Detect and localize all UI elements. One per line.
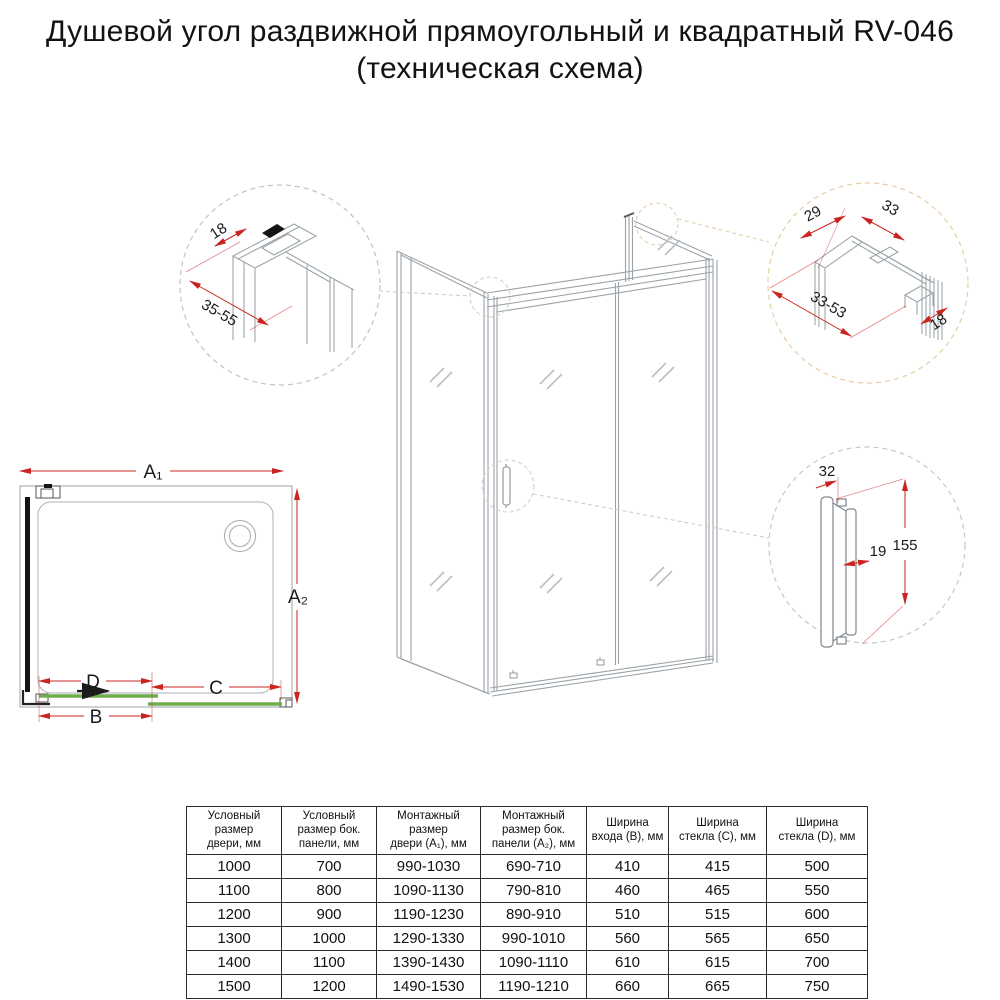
size-spec-table: Условный размер двери, ммУсловный размер… — [186, 806, 868, 999]
table-cell: 1500 — [187, 975, 282, 999]
plan-outline — [20, 486, 292, 707]
detail-circle-handle — [769, 447, 965, 643]
table-cell: 560 — [587, 927, 669, 951]
callout-line-left — [379, 291, 470, 296]
table-cell: 1190-1210 — [481, 975, 587, 999]
shower-tray — [38, 502, 273, 693]
door-handle-3d — [503, 464, 510, 508]
wall-profile-plan-top — [36, 484, 60, 498]
dim-label-155: 155 — [892, 537, 917, 554]
technical-scheme-page: Душевой угол раздвижной прямоугольный и … — [0, 0, 1000, 1000]
table-header-row: Условный размер двери, ммУсловный размер… — [187, 807, 868, 855]
table-cell: 410 — [587, 855, 669, 879]
table-cell: 700 — [767, 951, 868, 975]
table-cell: 1190-1230 — [377, 903, 481, 927]
table-cell: 890-910 — [481, 903, 587, 927]
detail-top-left: 18 35-55 — [180, 185, 380, 385]
table-header-cell: Монтажный размер двери (A₁), мм — [377, 807, 481, 855]
dim-label-35-55: 35-55 — [198, 296, 240, 330]
table-header-cell: Условный размер бок. панели, мм — [282, 807, 377, 855]
detail-handle: 32 155 19 — [769, 447, 965, 647]
table-cell: 790-810 — [481, 879, 587, 903]
table-header-cell: Ширина стекла (D), мм — [767, 807, 868, 855]
plan-label-b: B — [90, 707, 103, 728]
detail-circle-top-left — [180, 185, 380, 385]
table-cell: 550 — [767, 879, 868, 903]
dim-label-29: 29 — [802, 203, 825, 226]
table-cell: 1100 — [282, 951, 377, 975]
callout-line-right — [678, 219, 769, 242]
plan-label-a1: A₁ — [143, 462, 162, 483]
table-cell: 510 — [587, 903, 669, 927]
drain-circle-inner — [230, 526, 251, 547]
detail-top-right: 29 33 33-53 18 — [768, 183, 968, 383]
side-panel-plan — [25, 497, 30, 692]
dim-label-32: 32 — [819, 463, 836, 480]
table-cell: 700 — [282, 855, 377, 879]
table-row: 140011001390-14301090-1110610615700 — [187, 951, 868, 975]
table-cell: 690-710 — [481, 855, 587, 879]
wall-profile-iso-left — [233, 224, 354, 352]
table-cell: 1200 — [187, 903, 282, 927]
table-cell: 665 — [669, 975, 767, 999]
table-cell: 990-1010 — [481, 927, 587, 951]
table-cell: 1000 — [282, 927, 377, 951]
table-cell: 1300 — [187, 927, 282, 951]
wall-profile-iso-right — [815, 236, 942, 340]
table-row: 11008001090-1130790-810460465550 — [187, 879, 868, 903]
handle-drawing — [821, 497, 856, 647]
callout-circle-handle — [482, 460, 534, 512]
table-cell: 800 — [282, 879, 377, 903]
table-cell: 1100 — [187, 879, 282, 903]
table-cell: 1090-1130 — [377, 879, 481, 903]
table-cell: 515 — [669, 903, 767, 927]
table-header-cell: Ширина стекла (C), мм — [669, 807, 767, 855]
table-cell: 990-1030 — [377, 855, 481, 879]
plan-label-d: D — [86, 672, 100, 693]
table-cell: 500 — [767, 855, 868, 879]
table-cell: 750 — [767, 975, 868, 999]
table-cell: 1000 — [187, 855, 282, 879]
table-cell: 415 — [669, 855, 767, 879]
plan-label-a2: A₂ — [288, 587, 308, 608]
table-header-cell: Ширина входа (B), мм — [587, 807, 669, 855]
enclosure-3d-view — [397, 213, 717, 696]
callout-links — [379, 203, 769, 538]
table-header-cell: Монтажный размер бок. панели (A₂), мм — [481, 807, 587, 855]
table-cell: 1200 — [282, 975, 377, 999]
table-cell: 565 — [669, 927, 767, 951]
table-cell: 1290-1330 — [377, 927, 481, 951]
table-cell: 460 — [587, 879, 669, 903]
back-wall-profile-3d — [624, 213, 712, 282]
table-row: 150012001490-15301190-1210660665750 — [187, 975, 868, 999]
callout-line-handle — [533, 494, 769, 538]
table-cell: 465 — [669, 879, 767, 903]
dim-label-33: 33 — [879, 197, 902, 220]
dim-label-33-53: 33-53 — [807, 288, 849, 322]
plan-dims — [20, 471, 297, 722]
table-cell: 600 — [767, 903, 868, 927]
table-cell: 1490-1530 — [377, 975, 481, 999]
plan-view: A₁ A₂ D C B — [20, 462, 308, 728]
dim-label-19: 19 — [870, 543, 887, 560]
table-cell: 610 — [587, 951, 669, 975]
table-row: 130010001290-1330990-1010560565650 — [187, 927, 868, 951]
callout-circle-back-profile — [636, 203, 678, 245]
table-cell: 1400 — [187, 951, 282, 975]
side-panel-3d — [397, 251, 490, 694]
table-cell: 650 — [767, 927, 868, 951]
table-row: 1000700990-1030690-710410415500 — [187, 855, 868, 879]
table-cell: 615 — [669, 951, 767, 975]
plan-label-c: C — [209, 678, 223, 699]
detail-top-right-dims — [770, 208, 947, 338]
table-header-cell: Условный размер двери, мм — [187, 807, 282, 855]
table-cell: 1390-1430 — [377, 951, 481, 975]
table-cell: 900 — [282, 903, 377, 927]
table-cell: 660 — [587, 975, 669, 999]
door-glass-divider — [616, 282, 619, 665]
table-cell: 1090-1110 — [481, 951, 587, 975]
door-frame-3d — [484, 258, 717, 696]
table-row: 12009001190-1230890-910510515600 — [187, 903, 868, 927]
